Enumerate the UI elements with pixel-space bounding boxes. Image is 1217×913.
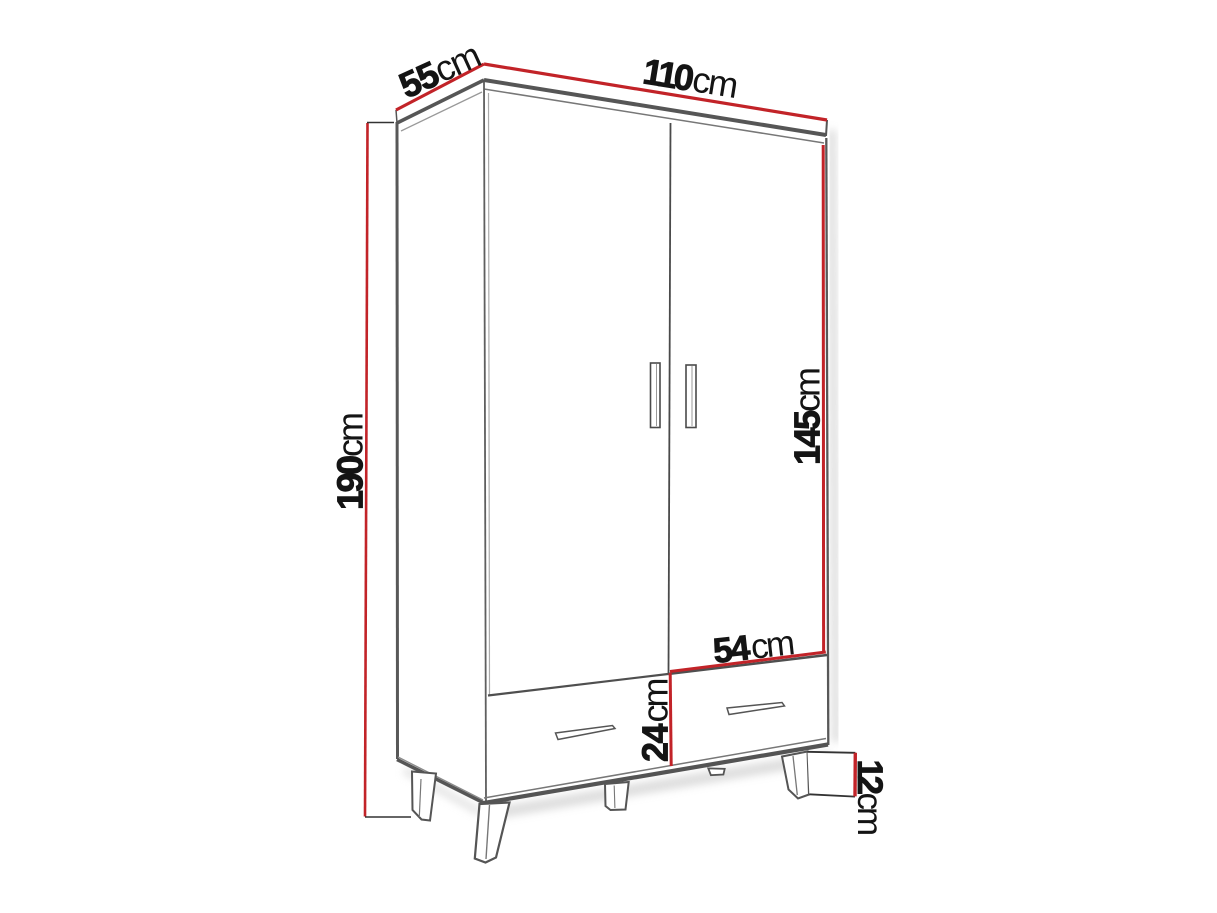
svg-text:cm: cm: [850, 793, 889, 835]
svg-text:110: 110: [640, 50, 696, 98]
svg-text:54: 54: [711, 628, 753, 671]
svg-text:190: 190: [330, 456, 371, 510]
svg-text:24: 24: [635, 723, 676, 762]
svg-text:cm: cm: [749, 623, 795, 666]
svg-text:cm: cm: [690, 58, 740, 106]
svg-text:cm: cm: [635, 680, 676, 723]
svg-text:12: 12: [850, 760, 889, 795]
svg-text:cm: cm: [330, 414, 371, 457]
svg-text:145: 145: [787, 410, 828, 465]
svg-text:cm: cm: [787, 369, 828, 412]
